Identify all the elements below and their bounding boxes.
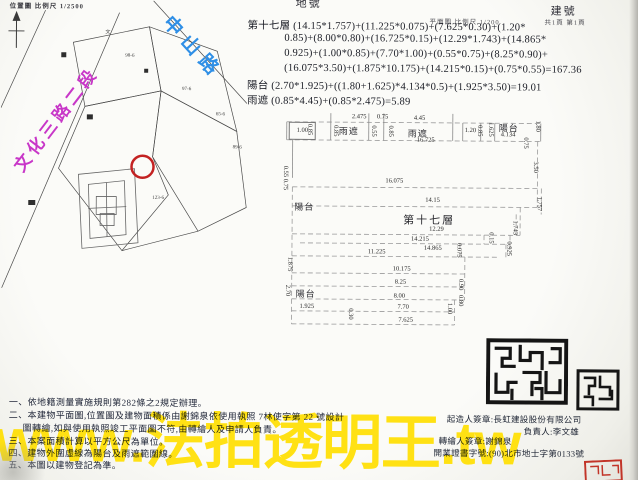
- dimension-label: 0.30: [346, 308, 353, 319]
- plan-room-label: 陽台: [294, 200, 314, 213]
- dimension-label: 2.475: [352, 114, 367, 121]
- page-edge-shadow: [629, 0, 638, 480]
- plan-room-label: 第十七層: [403, 212, 455, 228]
- dimension-label: 1.757: [535, 197, 542, 212]
- dimension-label: 0.075: [455, 243, 462, 258]
- red-seal-icon: [584, 459, 625, 480]
- dimension-label: 0.85: [387, 125, 394, 136]
- dimension-label: 14.865: [424, 246, 442, 253]
- dimension-label: 1.743: [511, 220, 518, 235]
- dimension-label: 0.925: [505, 241, 512, 256]
- plan-room-label: 雨遮: [339, 124, 359, 137]
- plan-room-label: 雨遮: [408, 127, 428, 140]
- dimension-label: 7.625: [398, 318, 413, 325]
- dimension-label: 10.175: [393, 267, 411, 274]
- dimension-label: 0.55: [370, 125, 377, 136]
- dimension-label: 8.25: [395, 280, 406, 287]
- document-sheet: 位置圖 比例尺 1/2500 地號 建號 平面圖 比例尺 1/200 共1頁 第…: [0, 0, 638, 480]
- dimension-label: 0.75: [377, 114, 388, 121]
- dimension-label: 14.15: [425, 198, 440, 205]
- dimension-label: 0.75: [281, 179, 288, 190]
- dimension-label: 0.55: [281, 166, 288, 177]
- dimension-label: 0.85: [306, 124, 313, 135]
- dimension-label: 4.45: [414, 116, 425, 123]
- dimension-label: 8.00: [394, 294, 405, 301]
- dimension-label: 0.75: [522, 137, 529, 148]
- dimension-label: 11.225: [368, 249, 386, 256]
- dimension-label: 2.70: [284, 285, 291, 296]
- dimension-label: 1.00: [445, 303, 452, 314]
- dimension-label: 7.70: [398, 305, 409, 312]
- seal-stamp-small-icon: [576, 369, 620, 411]
- dimension-label: 1.80: [534, 120, 541, 131]
- plan-room-label: 陽台: [499, 121, 519, 134]
- watermark-text: www.法拍透明王.tw: [0, 392, 521, 480]
- corner-shadow: [0, 442, 48, 480]
- dimension-label: 0.15: [487, 232, 494, 243]
- dimension-label: 1.925: [300, 304, 315, 311]
- dimension-label: 0.85: [476, 125, 483, 136]
- plan-room-label: 陽台: [296, 287, 316, 300]
- scanned-survey-document: 位置圖 比例尺 1/2500 地號 建號 平面圖 比例尺 1/200 共1頁 第…: [0, 0, 638, 480]
- dimension-label: 0.80: [457, 295, 464, 306]
- dimension-label: 14.215: [411, 237, 429, 244]
- dimension-label: 1.20: [465, 128, 476, 135]
- dimension-label: 0.85: [332, 125, 339, 136]
- dimension-label: 0.90: [457, 279, 464, 290]
- signature-line: 負責人:李文雄: [524, 425, 580, 437]
- dimension-label: 3.50: [531, 161, 538, 172]
- dimension-label: 1.625: [487, 122, 494, 137]
- dimension-label: 16.075: [385, 178, 403, 185]
- dimension-label: 1.875: [286, 257, 293, 272]
